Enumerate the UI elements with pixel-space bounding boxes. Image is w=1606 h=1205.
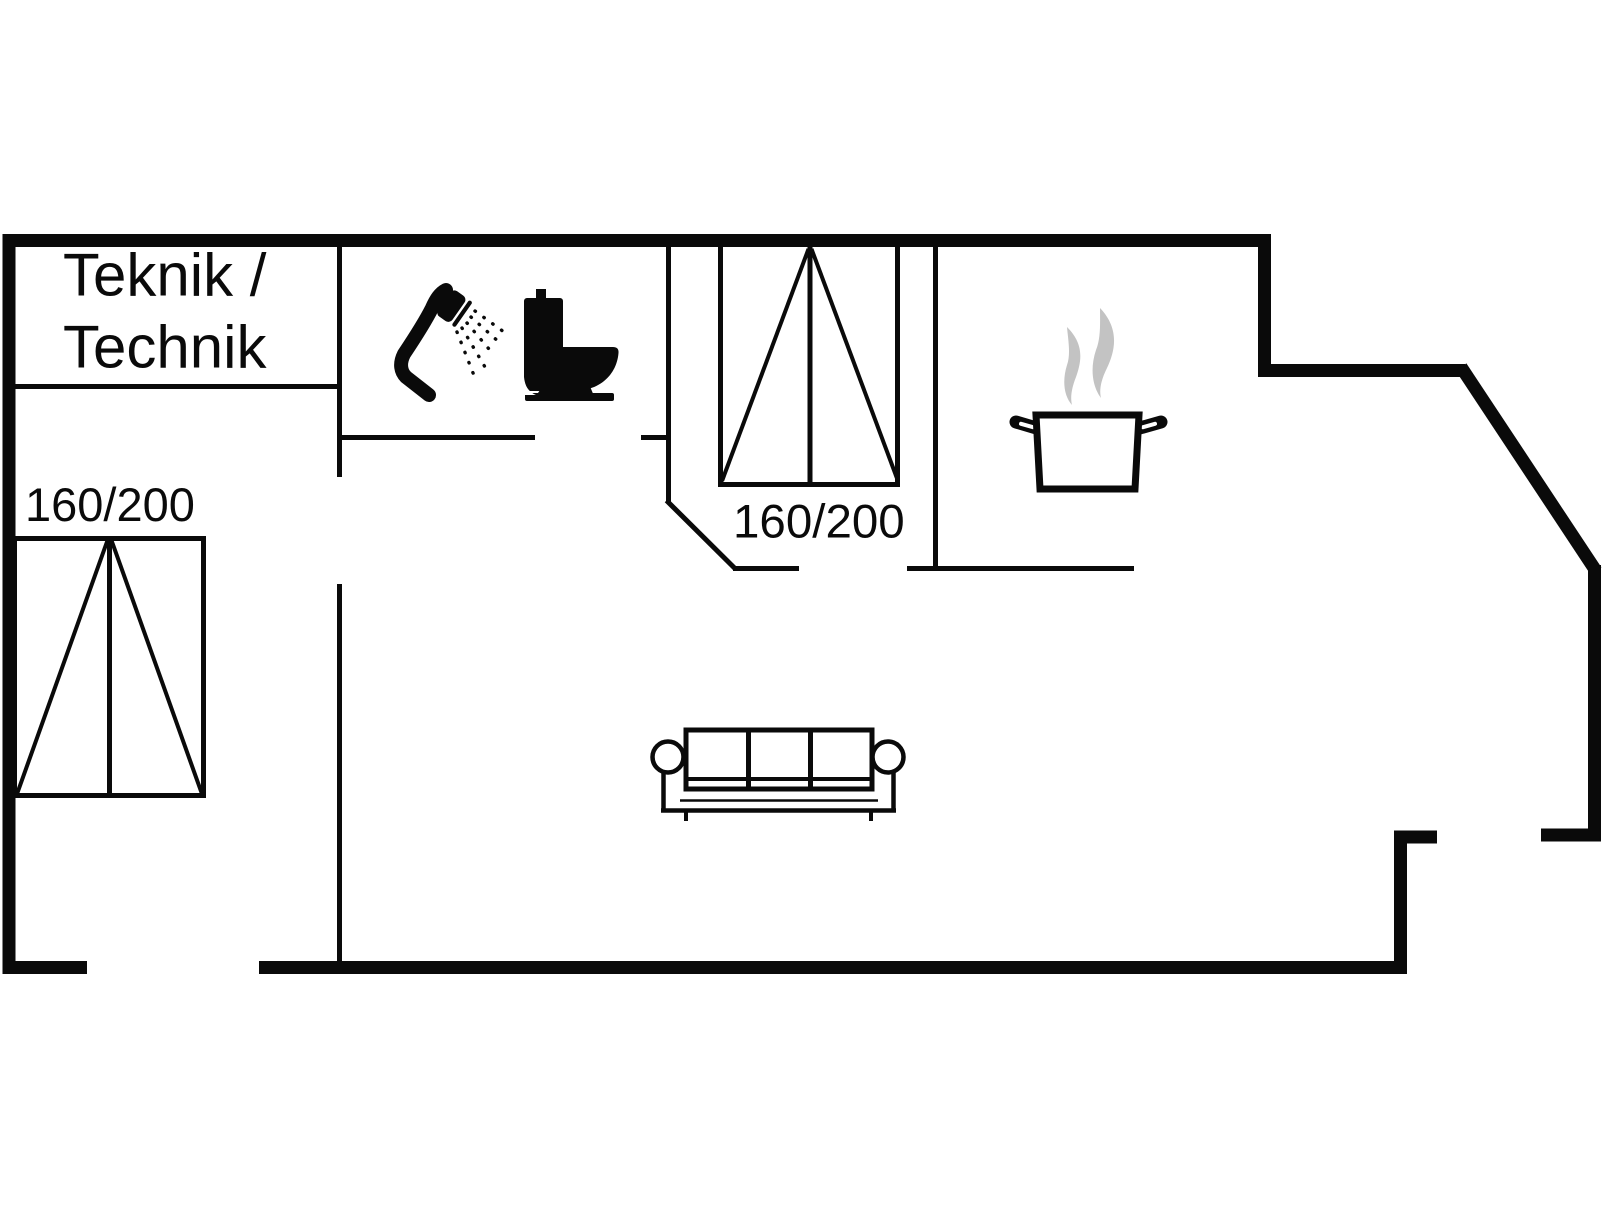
svg-text:Technik: Technik <box>63 314 267 381</box>
svg-text:Teknik /: Teknik / <box>63 242 267 309</box>
svg-text:160/200: 160/200 <box>25 478 195 531</box>
svg-text:160/200: 160/200 <box>733 496 905 549</box>
